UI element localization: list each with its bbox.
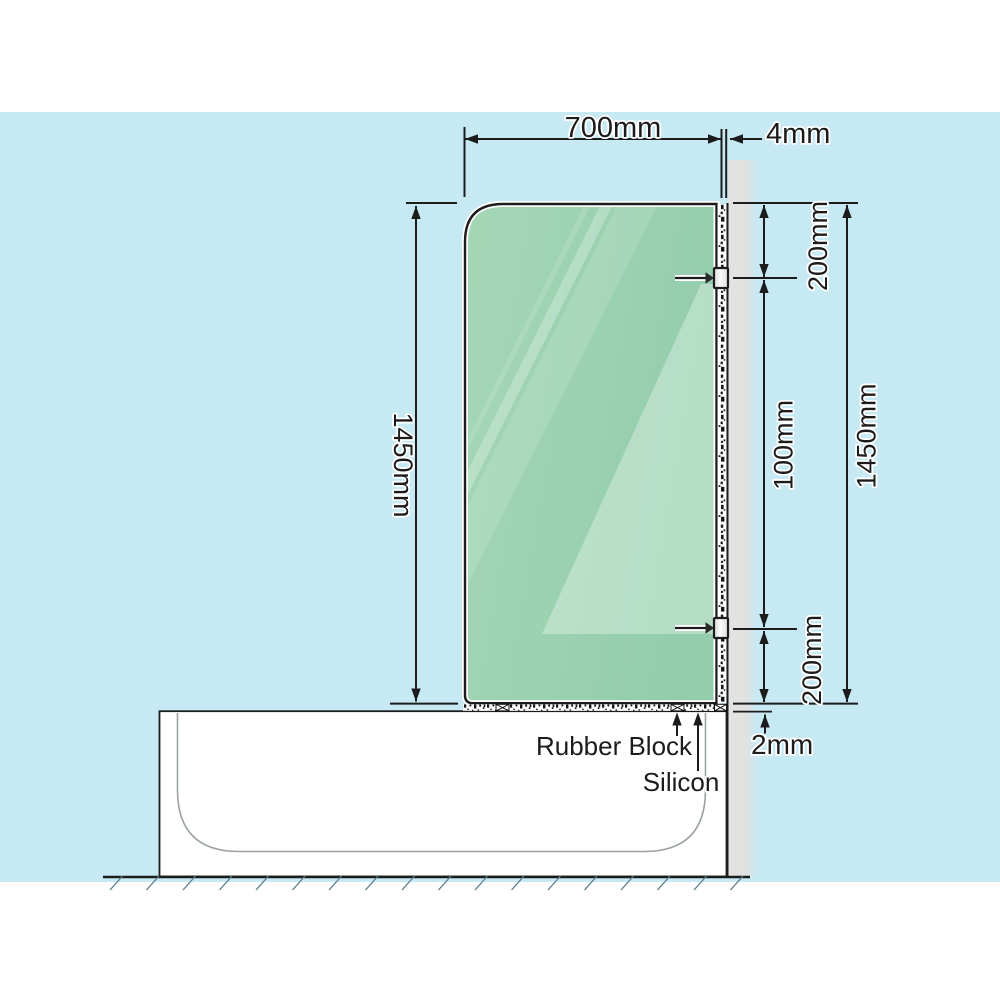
- svg-text:200mm: 200mm: [797, 615, 827, 705]
- svg-text:1450mm: 1450mm: [388, 412, 418, 517]
- svg-text:1450mm: 1450mm: [852, 383, 882, 488]
- svg-text:4mm: 4mm: [766, 118, 830, 150]
- svg-text:Silicon: Silicon: [643, 767, 720, 797]
- svg-text:700mm: 700mm: [565, 112, 662, 144]
- svg-text:200mm: 200mm: [803, 201, 833, 291]
- svg-text:2mm: 2mm: [751, 729, 813, 760]
- svg-text:Rubber Block: Rubber Block: [536, 731, 693, 761]
- svg-text:100mm: 100mm: [769, 400, 799, 490]
